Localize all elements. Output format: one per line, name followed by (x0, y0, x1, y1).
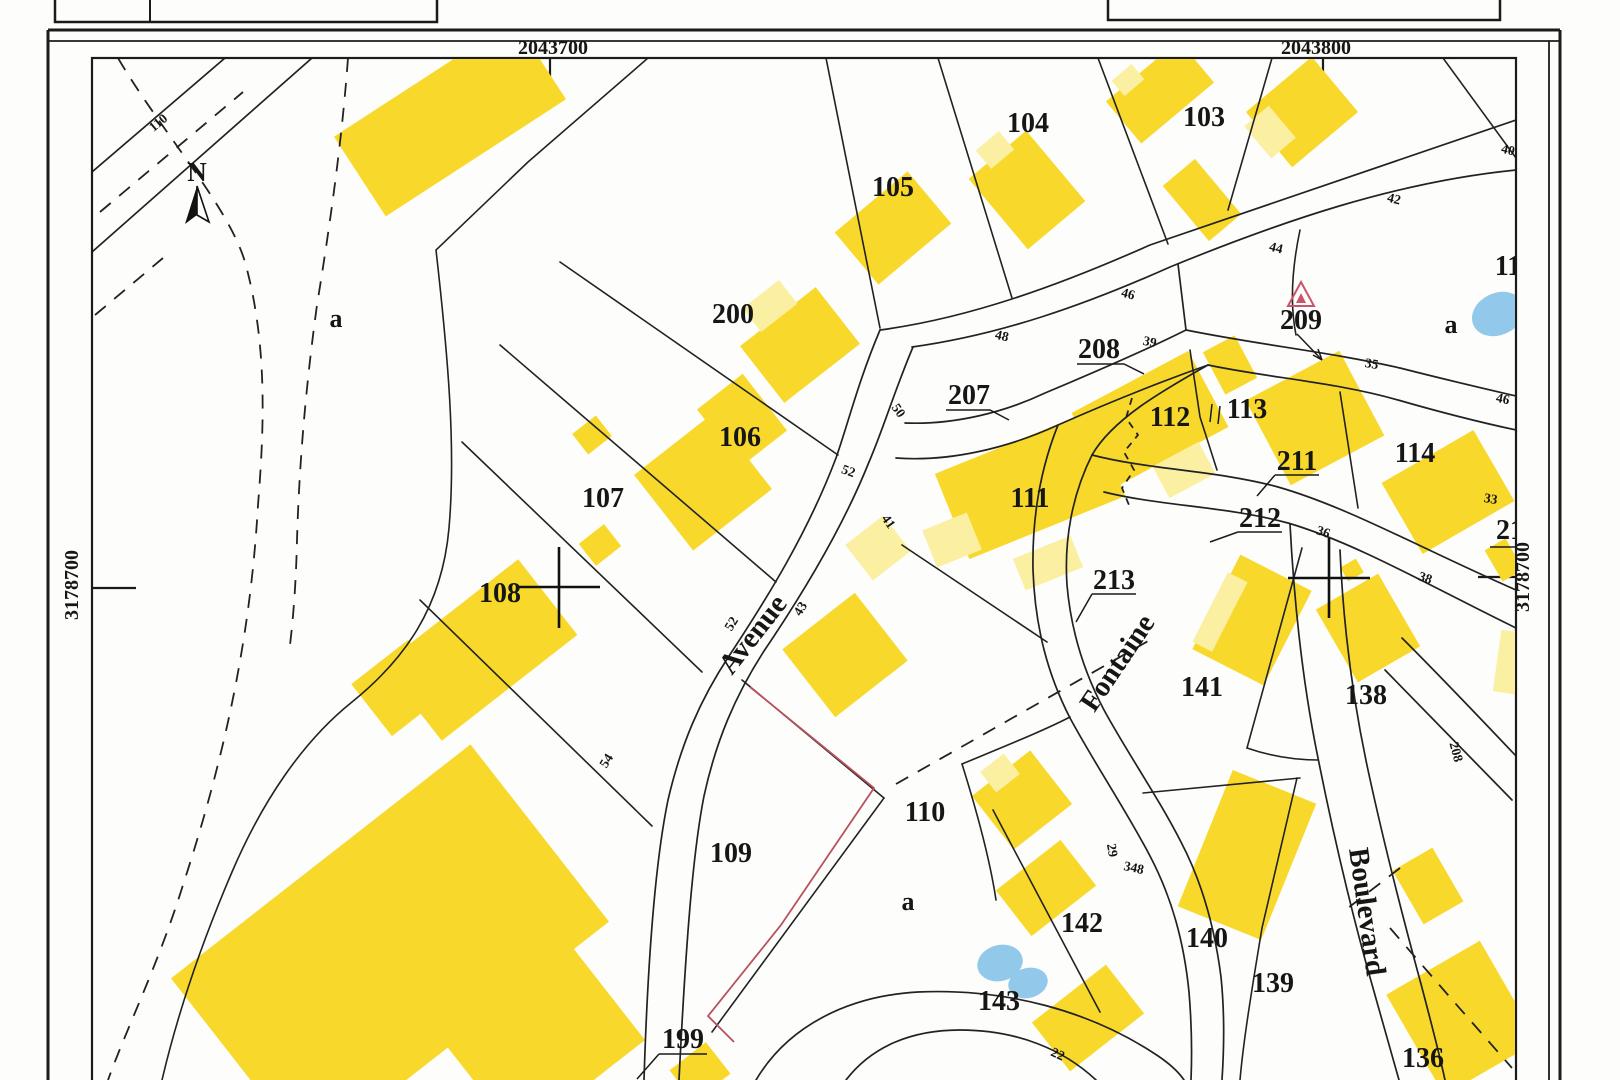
street-name-fontaine: Fontaine (1074, 609, 1162, 718)
parcel-label-141: 141 (1181, 672, 1223, 703)
street-number-48: 48 (994, 327, 1011, 345)
street-number-42: 42 (1386, 190, 1403, 208)
street-number-29: 29 (1104, 842, 1121, 858)
street-number-44: 44 (1268, 239, 1285, 257)
parcel-label-105: 105 (872, 172, 914, 203)
parcel-label-213: 213 (1093, 565, 1135, 596)
north-arrow-left-half (185, 186, 197, 224)
area-letter: a (902, 887, 915, 916)
parcel-label-138: 138 (1345, 680, 1387, 711)
street-number-46: 46 (1120, 285, 1137, 303)
street-number-208: 208 (1446, 740, 1466, 764)
buildings-layer (171, 20, 1538, 1080)
parcel-label-200: 200 (712, 299, 754, 330)
building-annex (1493, 630, 1523, 694)
parcel-label-113: 113 (1227, 394, 1267, 425)
leader-213 (1076, 594, 1136, 622)
street-number-54: 54 (596, 751, 616, 771)
parcel-label-207: 207 (948, 380, 990, 411)
area-letter: a (1445, 310, 1458, 339)
parcel-label-104: 104 (1007, 108, 1049, 139)
area-letter: a (330, 304, 343, 333)
north-label-layer: N (187, 157, 207, 187)
parcel-label-103: 103 (1183, 102, 1225, 133)
parcel-label-114: 114 (1395, 438, 1435, 469)
parcel-label-110: 110 (905, 797, 945, 828)
grid-coordinate: 3178700 (1512, 542, 1534, 612)
street-number-35: 35 (1364, 355, 1380, 372)
parcel-label-112: 112 (1150, 402, 1190, 433)
north-arrow (185, 186, 209, 224)
building (1316, 574, 1420, 683)
building-annex (1013, 536, 1083, 591)
street-number-348: 348 (1122, 858, 1145, 877)
street-number-39: 39 (1142, 333, 1159, 351)
dashed-path (100, 92, 243, 212)
parcel-label-208: 208 (1078, 334, 1120, 365)
road-edge (92, 58, 312, 252)
street-number-38: 38 (1417, 569, 1435, 588)
building (1163, 159, 1241, 241)
parcel-label-107: 107 (582, 483, 624, 514)
parcel-label-212: 212 (1239, 503, 1281, 534)
parcel-label-209: 209 (1280, 305, 1322, 336)
parcel-label-139: 139 (1252, 968, 1294, 999)
building (1393, 848, 1464, 925)
title-box-left (55, 0, 437, 22)
building (972, 750, 1072, 849)
parcel-label-211: 211 (1277, 446, 1317, 477)
parcel-label-136: 136 (1402, 1043, 1444, 1074)
road-se-south-edge (1385, 670, 1512, 800)
title-box-right (1108, 0, 1500, 20)
parcel-label-106: 106 (719, 422, 761, 453)
dashed-path (290, 58, 348, 645)
parcel-label-21: 21 (1496, 515, 1524, 546)
parcel-label-108: 108 (479, 578, 521, 609)
north-arrow-right-half (197, 186, 209, 222)
street-number-46: 46 (1495, 390, 1512, 408)
street-name-boulevard: Boulevard (1342, 846, 1392, 978)
parcel-label-143: 143 (978, 986, 1020, 1017)
cadastral-map-page: 1031041052002092082071131121061142111071… (0, 0, 1620, 1080)
parcel-label-111: 111 (1011, 483, 1050, 514)
pond (1465, 284, 1532, 345)
dashed-path (95, 258, 163, 315)
parcel-label-140: 140 (1186, 923, 1228, 954)
parcel-boundary (962, 717, 1070, 764)
leader-207 (946, 410, 1009, 420)
grid-coordinate: 3178700 (61, 550, 83, 620)
building-annex (845, 515, 911, 580)
parcel-label-142: 142 (1061, 908, 1103, 939)
geodetic-triangle-center (1296, 293, 1306, 303)
street-number-33: 33 (1483, 490, 1499, 507)
grid-coordinate: 2043700 (518, 37, 588, 59)
leader-209 (1297, 334, 1322, 360)
grid-coordinate: 2043800 (1281, 37, 1351, 59)
building (1178, 770, 1317, 940)
map-canvas: 1031041052002092082071131121061142111071… (0, 0, 1620, 1080)
north-letter: N (187, 157, 207, 187)
parcel-label-199: 199 (662, 1024, 704, 1055)
parcel-label-11: 11 (1495, 251, 1521, 282)
street-number-52: 52 (840, 461, 858, 480)
map-content: 1031041052002092082071131121061142111071… (92, 20, 1538, 1080)
road-edge (1178, 264, 1186, 330)
street-name-avenue: Avenue (712, 589, 793, 681)
parcel-boundary (1247, 748, 1318, 760)
parcel-label-109: 109 (710, 838, 752, 869)
